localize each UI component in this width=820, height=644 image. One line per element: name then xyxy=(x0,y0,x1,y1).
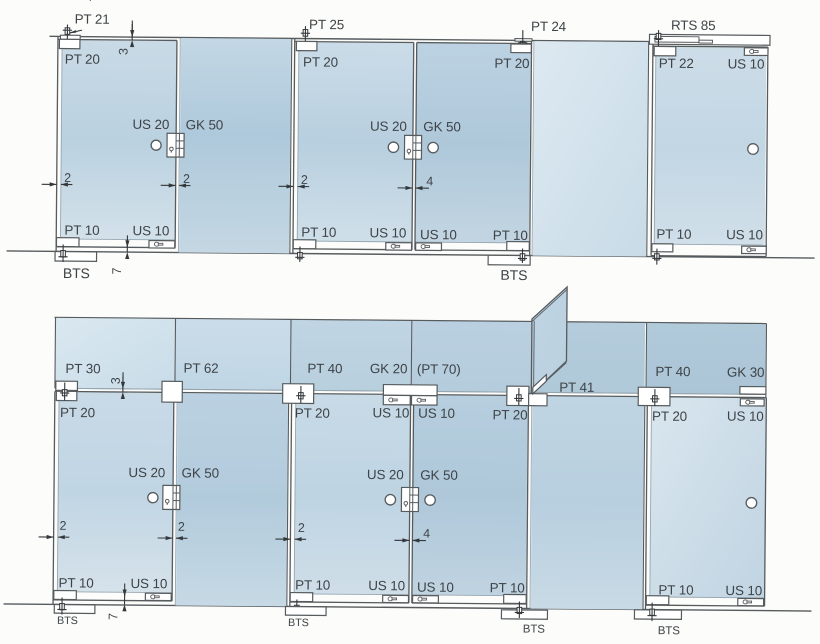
svg-text:GK 30: GK 30 xyxy=(727,365,765,380)
svg-text:2: 2 xyxy=(298,521,305,535)
svg-text:PT 20: PT 20 xyxy=(65,52,100,67)
svg-text:PT 24: PT 24 xyxy=(531,19,567,34)
svg-text:US 10: US 10 xyxy=(726,227,763,242)
svg-text:US 10: US 10 xyxy=(369,225,406,240)
svg-text:PT 20: PT 20 xyxy=(295,405,330,420)
svg-text:PT 10: PT 10 xyxy=(295,577,330,592)
svg-text:PT 10: PT 10 xyxy=(64,223,99,238)
svg-text:GK 50: GK 50 xyxy=(423,119,461,134)
svg-text:US 10: US 10 xyxy=(420,227,457,242)
svg-text:PT 10: PT 10 xyxy=(493,228,528,243)
svg-text:PT 21: PT 21 xyxy=(75,12,110,27)
svg-text:US 10: US 10 xyxy=(727,409,764,424)
svg-text:GK 50: GK 50 xyxy=(182,465,220,480)
svg-text:7: 7 xyxy=(110,267,124,274)
svg-text:BTS: BTS xyxy=(500,267,527,283)
svg-text:2: 2 xyxy=(183,172,190,186)
svg-text:PT 20: PT 20 xyxy=(60,405,95,420)
svg-text:GK 20: GK 20 xyxy=(370,361,408,376)
svg-text:US 10: US 10 xyxy=(373,405,410,420)
svg-text:GK 50: GK 50 xyxy=(420,467,458,482)
svg-text:4: 4 xyxy=(423,527,430,541)
svg-text:US 20: US 20 xyxy=(367,467,404,482)
svg-text:BTS: BTS xyxy=(658,625,681,637)
svg-text:US 10: US 10 xyxy=(133,223,170,238)
svg-text:PT 10: PT 10 xyxy=(301,225,336,240)
svg-text:BTS: BTS xyxy=(63,265,90,281)
svg-text:US 10: US 10 xyxy=(368,578,405,593)
svg-text:(PT 70): (PT 70) xyxy=(417,361,461,376)
svg-text:PT 41: PT 41 xyxy=(559,380,594,395)
svg-text:US 10: US 10 xyxy=(725,583,762,598)
svg-text:US 20: US 20 xyxy=(370,119,407,134)
svg-text:PT 20: PT 20 xyxy=(494,56,529,71)
svg-text:PT 10: PT 10 xyxy=(59,575,94,590)
svg-text:2: 2 xyxy=(178,520,185,534)
svg-text:PT 62: PT 62 xyxy=(184,361,219,376)
svg-text:RTS 85: RTS 85 xyxy=(671,18,716,33)
svg-text:2: 2 xyxy=(59,519,66,533)
svg-text:PT 10: PT 10 xyxy=(490,580,525,595)
svg-text:US 10: US 10 xyxy=(728,56,765,71)
svg-text:BTS: BTS xyxy=(523,623,546,635)
svg-text:7: 7 xyxy=(106,613,120,620)
svg-text:GK 50: GK 50 xyxy=(186,117,224,132)
svg-text:BTS: BTS xyxy=(288,617,309,629)
svg-text:PT 40: PT 40 xyxy=(307,361,342,376)
svg-text:US 10: US 10 xyxy=(130,576,167,591)
svg-text:4: 4 xyxy=(426,174,433,188)
svg-text:PT 22: PT 22 xyxy=(659,56,694,71)
svg-text:PT 30: PT 30 xyxy=(65,361,100,376)
svg-text:PT 20: PT 20 xyxy=(303,54,338,69)
svg-text:US 20: US 20 xyxy=(128,465,165,480)
svg-text:PT 25: PT 25 xyxy=(309,17,344,32)
svg-text:BTS: BTS xyxy=(57,615,78,627)
svg-text:3: 3 xyxy=(117,48,131,55)
svg-text:US 10: US 10 xyxy=(417,580,454,595)
svg-text:PT 20: PT 20 xyxy=(652,409,687,424)
svg-text:PT 10: PT 10 xyxy=(658,582,693,597)
svg-text:US 10: US 10 xyxy=(418,406,455,421)
svg-text:US 20: US 20 xyxy=(132,117,169,132)
svg-text:PT 40: PT 40 xyxy=(655,364,690,379)
svg-text:PT 20: PT 20 xyxy=(492,407,527,422)
svg-text:3: 3 xyxy=(109,377,123,384)
svg-text:PT 10: PT 10 xyxy=(656,227,691,242)
